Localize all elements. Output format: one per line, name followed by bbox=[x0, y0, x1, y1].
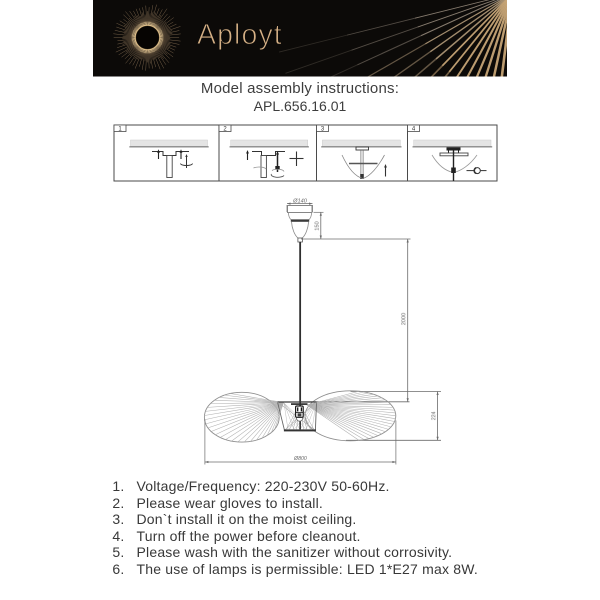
svg-text:2000: 2000 bbox=[401, 313, 407, 325]
svg-text:224: 224 bbox=[431, 411, 437, 420]
svg-text:Ø800: Ø800 bbox=[293, 456, 307, 462]
svg-text:150: 150 bbox=[315, 221, 321, 230]
